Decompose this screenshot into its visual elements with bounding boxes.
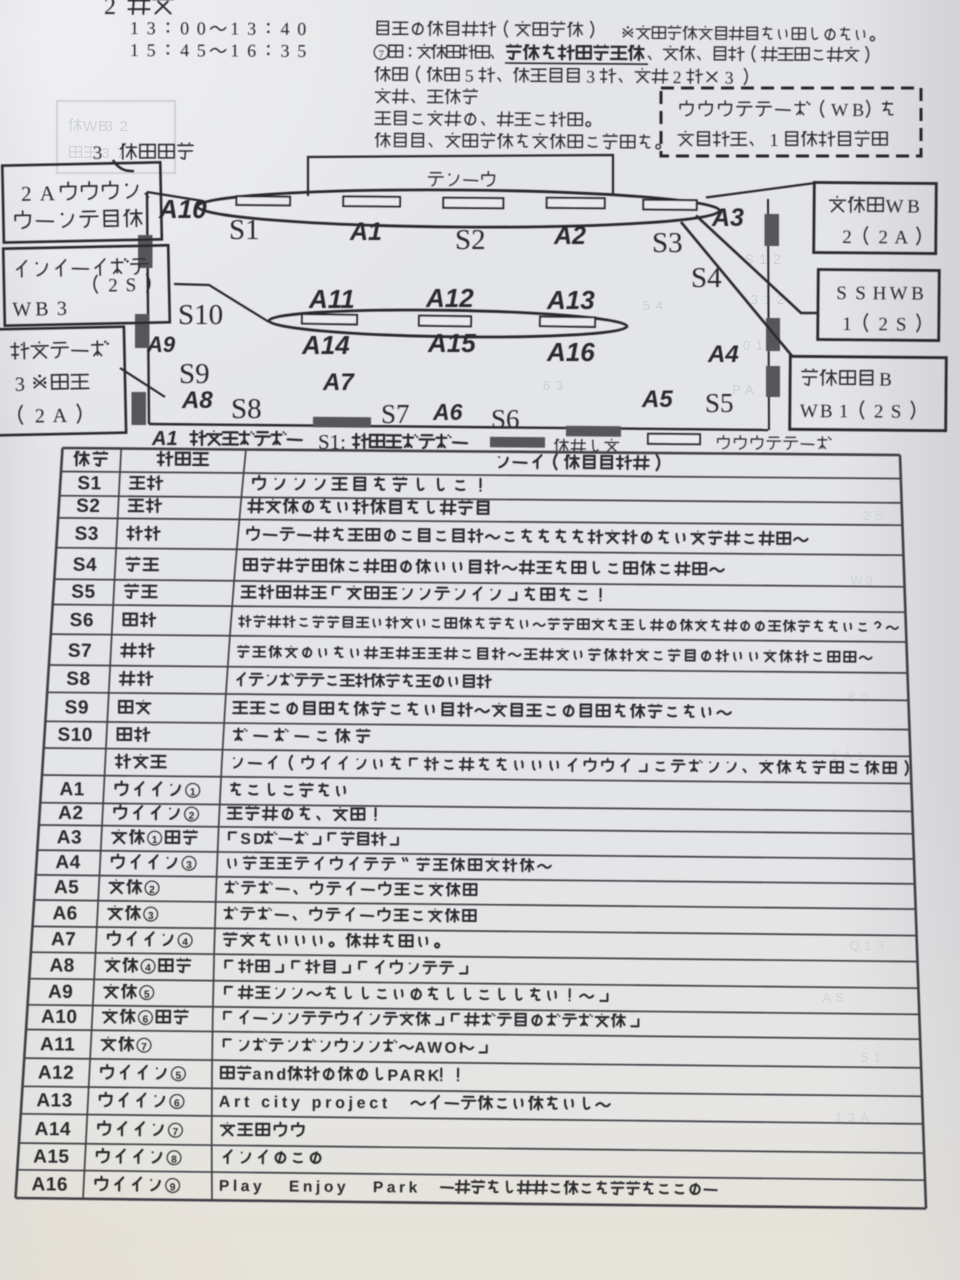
svg-text:B: B: [879, 370, 892, 391]
svg-text:2: 2: [878, 314, 888, 335]
svg-text:2: 2: [773, 251, 781, 267]
svg-text:A14: A14: [301, 330, 350, 360]
svg-text:3: 3: [93, 143, 103, 164]
svg-text:A2: A2: [553, 222, 586, 250]
svg-text:A: A: [822, 990, 831, 1005]
svg-text:A15: A15: [427, 328, 476, 358]
svg-text:6: 6: [143, 1014, 149, 1025]
svg-text:0: 0: [197, 18, 206, 38]
svg-text:B: B: [820, 401, 833, 422]
svg-text:S6: S6: [491, 404, 520, 434]
svg-text:3: 3: [101, 145, 109, 162]
svg-text:6: 6: [543, 378, 550, 393]
svg-text:0: 0: [861, 690, 868, 705]
svg-text:8: 8: [171, 1155, 177, 1166]
svg-text:S: S: [896, 314, 907, 335]
svg-text:A13: A13: [36, 1090, 73, 1111]
svg-text:3: 3: [186, 860, 192, 871]
svg-text:1: 1: [770, 130, 779, 150]
svg-text:S10: S10: [178, 299, 223, 331]
svg-text:A5: A5: [641, 386, 673, 413]
svg-text:A9: A9: [146, 332, 176, 357]
svg-text:4: 4: [656, 298, 663, 313]
svg-text:1: 1: [842, 314, 852, 335]
svg-text:5: 5: [465, 66, 474, 86]
svg-text:B: B: [35, 298, 49, 320]
svg-text:5: 5: [297, 41, 306, 61]
svg-text:S: S: [835, 990, 844, 1005]
svg-text:S1: S1: [229, 214, 260, 246]
svg-text:2: 2: [863, 508, 870, 523]
svg-text:A4: A4: [55, 852, 80, 873]
svg-text:0: 0: [297, 19, 306, 39]
svg-text:A7: A7: [51, 929, 76, 950]
svg-text:A11: A11: [308, 284, 355, 314]
svg-text:S10: S10: [58, 725, 93, 746]
svg-text:2: 2: [104, 0, 116, 20]
svg-text:A: A: [52, 405, 67, 427]
svg-text:S: S: [875, 508, 884, 523]
svg-text:5: 5: [861, 1050, 868, 1065]
svg-text:4: 4: [180, 40, 189, 60]
svg-text:and: and: [252, 1066, 288, 1083]
svg-text:S3: S3: [75, 524, 99, 545]
svg-text:PARK: PARK: [387, 1068, 442, 1085]
svg-text:1: 1: [230, 41, 239, 61]
svg-text:1: 1: [864, 938, 871, 953]
svg-text:5: 5: [175, 1071, 181, 1082]
svg-text:WB: WB: [831, 100, 868, 120]
svg-text:A12: A12: [38, 1063, 75, 1084]
svg-text:A4: A4: [707, 341, 739, 368]
svg-text:8: 8: [848, 690, 855, 705]
svg-text:S2: S2: [455, 224, 486, 256]
svg-text:Q: Q: [849, 938, 859, 953]
svg-text:S6: S6: [70, 610, 94, 631]
svg-text:4: 4: [145, 963, 151, 974]
svg-text:3: 3: [877, 938, 884, 953]
svg-text:2: 2: [842, 227, 852, 248]
svg-text:2: 2: [21, 182, 32, 206]
svg-text:1: 1: [874, 1050, 881, 1065]
svg-text:3: 3: [586, 66, 595, 86]
svg-text:0: 0: [743, 338, 750, 353]
svg-text:A: A: [40, 181, 56, 205]
svg-text:W: W: [885, 196, 903, 217]
svg-text:7: 7: [379, 49, 384, 60]
svg-text:S1: S1: [77, 473, 101, 494]
svg-text:1: 1: [230, 19, 239, 39]
svg-text:1: 1: [130, 18, 139, 38]
svg-text:0: 0: [180, 18, 189, 38]
svg-text:5: 5: [147, 40, 156, 60]
svg-text:W: W: [12, 299, 31, 321]
svg-text:2: 2: [108, 275, 118, 296]
svg-text:3: 3: [751, 292, 758, 307]
svg-text:S2: S2: [76, 496, 100, 517]
svg-text:3: 3: [15, 374, 25, 396]
svg-text:1: 1: [759, 251, 767, 267]
svg-text:3: 3: [247, 19, 256, 39]
svg-text:9: 9: [170, 1182, 176, 1193]
svg-text:6: 6: [247, 41, 256, 61]
svg-text:S7: S7: [68, 641, 92, 662]
svg-text:2: 2: [120, 118, 128, 135]
svg-text:2: 2: [149, 885, 155, 896]
svg-text:Play Enjoy Park: Play Enjoy Park: [219, 1178, 437, 1197]
svg-text:A15: A15: [33, 1146, 70, 1167]
svg-text:3: 3: [57, 298, 67, 320]
svg-text:S3: S3: [652, 227, 683, 259]
svg-text:A2: A2: [58, 803, 83, 824]
svg-text:S4: S4: [73, 555, 97, 576]
svg-text:A3: A3: [711, 204, 744, 232]
svg-text:S9: S9: [179, 358, 210, 390]
svg-text:A1: A1: [349, 218, 382, 246]
svg-text:AWOI: AWOI: [414, 1040, 465, 1057]
svg-text:A3: A3: [57, 827, 82, 848]
svg-text:A1: A1: [151, 428, 178, 450]
svg-text:A7: A7: [322, 369, 355, 396]
svg-text:1: 1: [756, 338, 763, 353]
svg-text:S5: S5: [705, 388, 734, 418]
svg-text:W: W: [889, 283, 907, 304]
svg-text:A12: A12: [425, 283, 474, 313]
svg-text:7: 7: [173, 1127, 179, 1138]
svg-text:1: 1: [152, 835, 158, 846]
svg-text:4: 4: [182, 937, 188, 948]
svg-text:A8: A8: [49, 955, 74, 976]
svg-text:2: 2: [189, 811, 195, 822]
svg-text:S8: S8: [231, 393, 262, 425]
svg-text:2: 2: [35, 405, 45, 427]
svg-text:Art city project: Art city project: [219, 1094, 391, 1113]
svg-text:1: 1: [130, 40, 139, 60]
svg-text:A8: A8: [181, 387, 213, 414]
svg-text:1: 1: [839, 401, 849, 422]
svg-text:S9: S9: [65, 697, 89, 718]
svg-text:3: 3: [105, 118, 113, 135]
svg-text:SD: SD: [240, 831, 267, 848]
svg-text:S5: S5: [71, 582, 95, 603]
svg-text:B: B: [911, 284, 924, 305]
svg-text:S: S: [891, 402, 902, 423]
svg-text:A5: A5: [54, 877, 79, 898]
svg-text:3: 3: [280, 41, 289, 61]
svg-text:3: 3: [148, 911, 154, 922]
svg-text:3: 3: [147, 18, 156, 38]
svg-text:A14: A14: [35, 1119, 72, 1140]
svg-text:A11: A11: [40, 1034, 75, 1055]
svg-text:A16: A16: [31, 1174, 68, 1195]
svg-text:5: 5: [197, 40, 206, 60]
svg-text:1: 1: [190, 787, 196, 798]
svg-text:7: 7: [141, 1042, 147, 1053]
svg-text:A16: A16: [546, 337, 595, 367]
svg-text:S: S: [836, 283, 847, 304]
svg-text:H: H: [873, 283, 887, 304]
svg-text:S8: S8: [66, 669, 90, 690]
svg-text:3: 3: [725, 67, 734, 87]
svg-text:S7: S7: [381, 399, 410, 429]
svg-text:5: 5: [144, 989, 150, 1000]
svg-text:4: 4: [280, 19, 289, 39]
svg-text:A10: A10: [41, 1007, 78, 1028]
svg-text:3: 3: [556, 378, 563, 393]
svg-text:A6: A6: [52, 903, 77, 924]
svg-text:A1: A1: [59, 779, 84, 800]
svg-text:5: 5: [643, 298, 650, 313]
svg-text:A: A: [894, 227, 908, 248]
svg-text:B: B: [907, 197, 920, 218]
svg-text:S: S: [125, 275, 136, 296]
svg-text:A9: A9: [48, 982, 73, 1003]
svg-text:A13: A13: [546, 285, 595, 315]
svg-text:A: A: [745, 382, 754, 397]
svg-text:2: 2: [673, 67, 682, 87]
svg-text:2: 2: [878, 227, 888, 248]
svg-text:A6: A6: [432, 399, 463, 425]
svg-text:W: W: [800, 401, 818, 422]
svg-text:S: S: [855, 283, 866, 304]
svg-text:2: 2: [874, 402, 884, 423]
svg-text:6: 6: [174, 1098, 180, 1109]
